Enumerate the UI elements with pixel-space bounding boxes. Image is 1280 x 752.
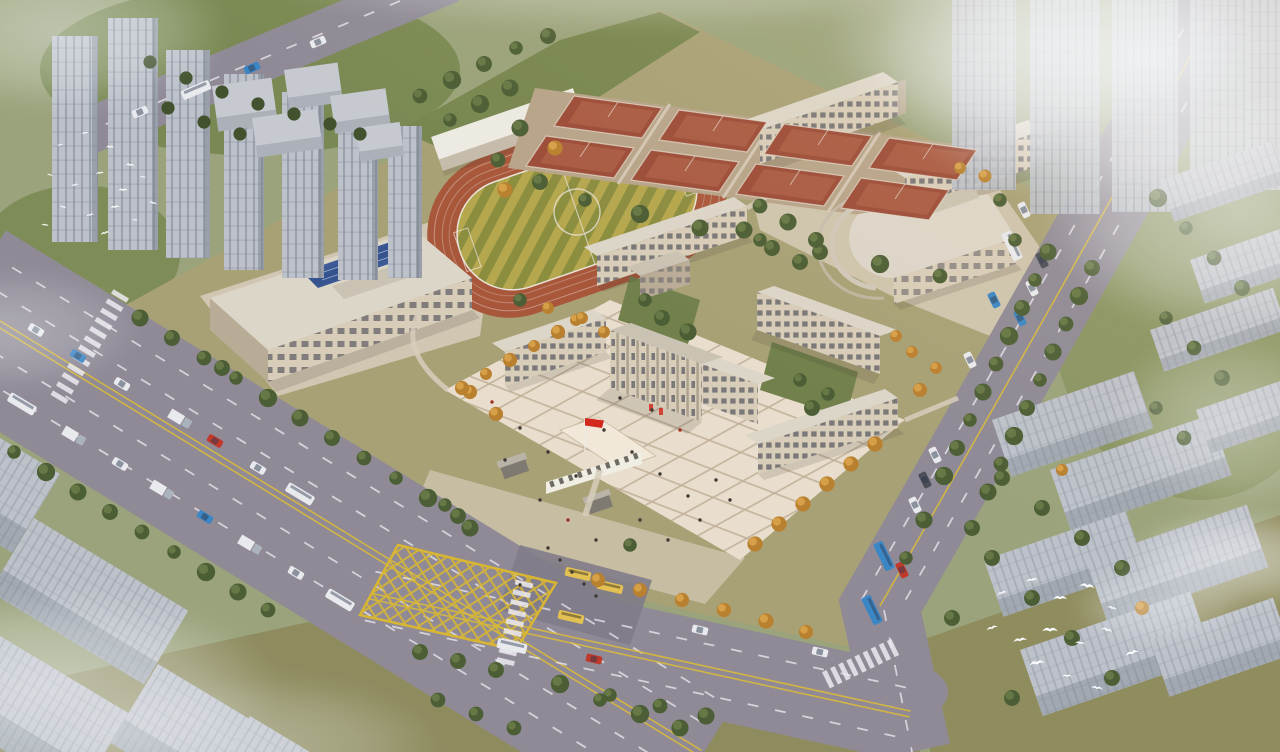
campus-aerial-rendering bbox=[0, 0, 1280, 752]
rendering-canvas bbox=[0, 0, 1280, 752]
fog-patch bbox=[1070, 566, 1250, 646]
